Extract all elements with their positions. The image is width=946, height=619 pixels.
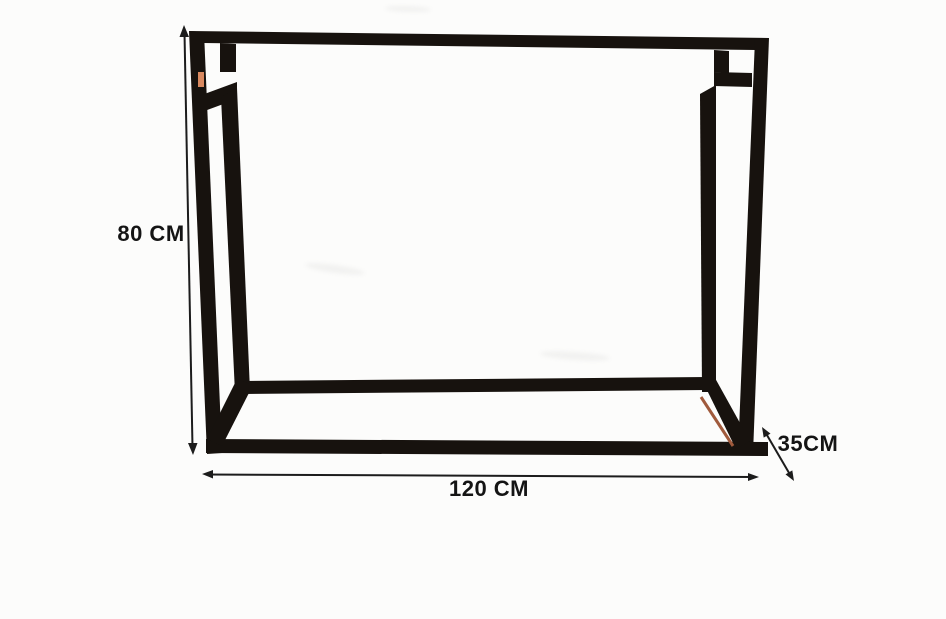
back-bottom-rail [243,377,707,394]
height-dimension-label: 80 CM [117,221,184,247]
back-right-post-upper [714,50,729,73]
height-arrow-top-icon [180,25,190,37]
back-right-bracket [714,72,752,87]
width-arrow-right-icon [748,473,759,481]
back-left-post-upper [220,43,236,72]
frame-right-post [738,38,769,454]
frame-drawing [0,0,946,619]
accent-mark-left-bracket [198,72,204,87]
depth-arrow-top-icon [762,427,771,438]
width-arrow-left-icon [202,470,213,479]
back-right-post [700,85,716,392]
depth-dimension-label: 35CM [778,431,839,457]
back-left-post [221,88,250,393]
depth-arrow-bottom-icon [786,470,795,481]
height-dimension-line [185,33,193,447]
frame-bottom-rail [206,439,768,456]
height-arrow-bottom-icon [188,443,198,455]
diagram-canvas: 80 CM 120 CM 35CM [0,0,946,619]
width-dimension-label: 120 CM [449,476,529,502]
frame-top-rail [189,31,769,50]
